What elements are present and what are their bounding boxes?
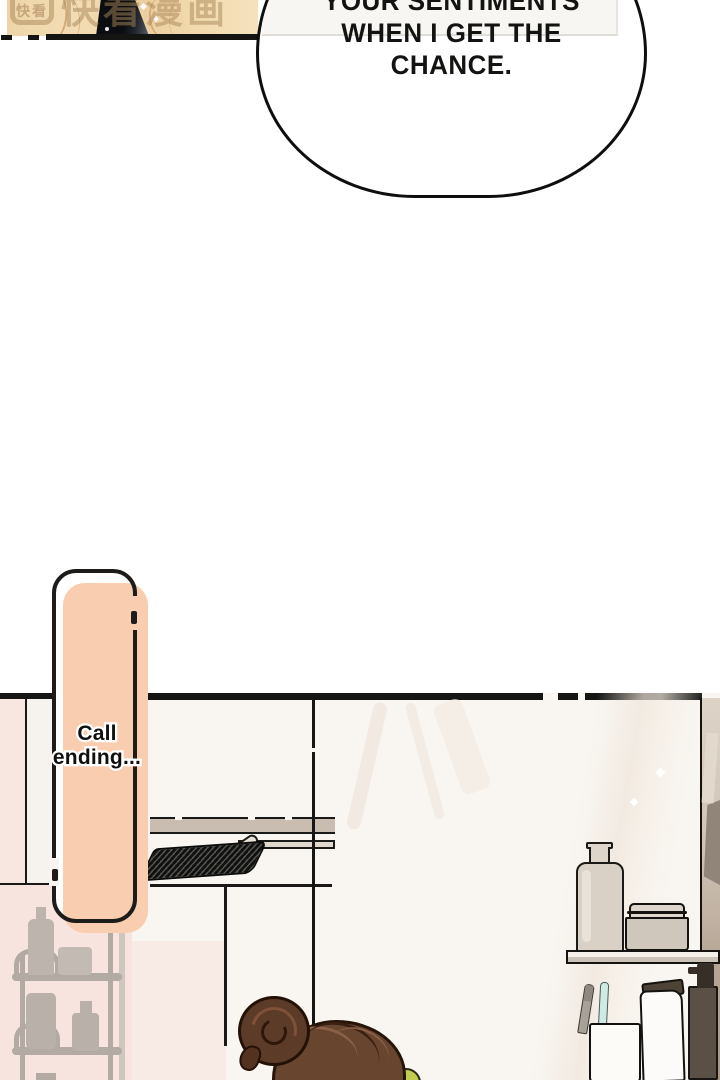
cart-bottle-neck bbox=[36, 907, 46, 923]
comic-page: 快看 快看漫画 YOUR SENTIMENTS WHEN I GET THE C… bbox=[0, 0, 720, 1080]
left-wall-lower bbox=[132, 941, 226, 1080]
bar-notch bbox=[248, 817, 255, 820]
cart-item bbox=[36, 1073, 56, 1080]
shelf-jar-ridge bbox=[627, 911, 687, 914]
speech-line: YOUR SENTIMENTS bbox=[263, 0, 640, 17]
speech-bubble-text: YOUR SENTIMENTS WHEN I GET THE CHANCE. bbox=[263, 0, 640, 81]
panel-bottom-border bbox=[46, 34, 258, 40]
cart-bottle-neck bbox=[80, 1001, 92, 1015]
border-dash bbox=[28, 35, 39, 40]
bottle-highlight bbox=[582, 870, 591, 942]
shelf-cart-silhouette bbox=[8, 905, 130, 1080]
wall-edge-line bbox=[150, 884, 332, 887]
wall-light-streak bbox=[346, 701, 389, 831]
watermark-logo-text: 快看 bbox=[16, 5, 48, 20]
cart-jar bbox=[58, 947, 92, 975]
bathroom-panel bbox=[0, 693, 720, 1080]
speech-bubble: YOUR SENTIMENTS WHEN I GET THE CHANCE. bbox=[256, 0, 647, 198]
wall-divider-line bbox=[224, 886, 227, 1046]
border-dash bbox=[1, 35, 12, 40]
toothbrush-head bbox=[583, 985, 593, 1002]
shower-head bbox=[138, 840, 268, 881]
watermark-logo-icon: 快看 bbox=[10, 0, 54, 25]
shelf-bottle bbox=[576, 862, 624, 953]
outline-notch bbox=[129, 596, 140, 630]
cart-pole bbox=[108, 930, 113, 1080]
watermark: 快看 快看漫画 bbox=[7, 0, 258, 36]
bar-notch bbox=[175, 817, 182, 820]
toothbrush-cup bbox=[589, 1023, 641, 1080]
wall-divider-line bbox=[312, 752, 315, 1027]
pump-bottle bbox=[688, 986, 718, 1080]
top-left-art-panel: 快看 快看漫画 bbox=[7, 0, 258, 36]
bar-notch bbox=[285, 817, 292, 820]
pump-bottle-spout bbox=[688, 967, 701, 974]
cart-bottle bbox=[72, 1013, 99, 1051]
speech-line: CHANCE. bbox=[263, 49, 640, 81]
speech-line: WHEN I GET THE bbox=[263, 17, 640, 49]
panel-top-border-segment bbox=[0, 693, 543, 700]
outline-dash bbox=[131, 611, 137, 624]
shampoo-bottle bbox=[639, 989, 685, 1080]
left-wall-pink bbox=[0, 699, 25, 884]
wall-divider-line bbox=[312, 699, 315, 748]
watermark-text: 快看漫画 bbox=[61, 0, 229, 34]
left-wall-light bbox=[27, 699, 52, 884]
cart-bottle bbox=[28, 919, 54, 975]
wall-shelf-board bbox=[566, 950, 720, 964]
shelf-jar bbox=[625, 917, 689, 951]
cart-bottle bbox=[26, 993, 56, 1049]
wall-light-streak bbox=[432, 697, 493, 797]
